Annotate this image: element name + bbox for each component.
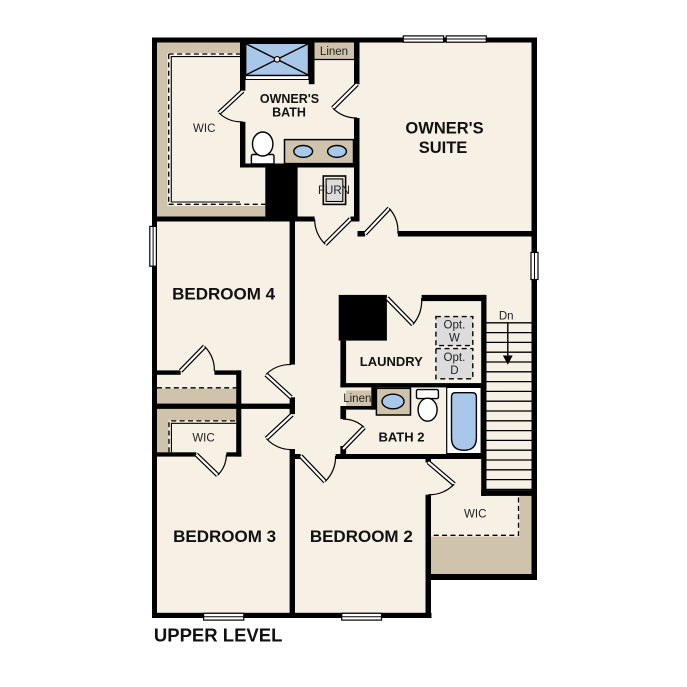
svg-text:BEDROOM 4: BEDROOM 4 <box>172 285 276 304</box>
svg-text:D: D <box>450 365 458 377</box>
svg-text:FURN: FURN <box>318 185 350 197</box>
svg-text:Linen: Linen <box>320 46 348 58</box>
svg-text:BEDROOM 3: BEDROOM 3 <box>173 527 276 546</box>
svg-text:BEDROOM 2: BEDROOM 2 <box>310 527 413 546</box>
svg-text:Linen: Linen <box>343 393 371 405</box>
svg-text:WIC: WIC <box>193 123 215 135</box>
svg-text:WIC: WIC <box>464 509 486 521</box>
svg-text:BATH: BATH <box>272 105 306 119</box>
svg-text:SUITE: SUITE <box>419 139 468 157</box>
svg-text:WIC: WIC <box>192 432 214 444</box>
svg-text:BATH 2: BATH 2 <box>379 430 425 445</box>
svg-text:Dn: Dn <box>499 311 514 323</box>
svg-text:OWNER'S: OWNER'S <box>405 120 483 138</box>
svg-text:Opt.: Opt. <box>444 352 466 364</box>
svg-text:OWNER'S: OWNER'S <box>260 92 319 106</box>
svg-text:LAUNDRY: LAUNDRY <box>360 354 423 369</box>
svg-text:UPPER LEVEL: UPPER LEVEL <box>154 625 283 646</box>
svg-text:W: W <box>449 332 460 344</box>
svg-text:Opt.: Opt. <box>444 319 466 331</box>
